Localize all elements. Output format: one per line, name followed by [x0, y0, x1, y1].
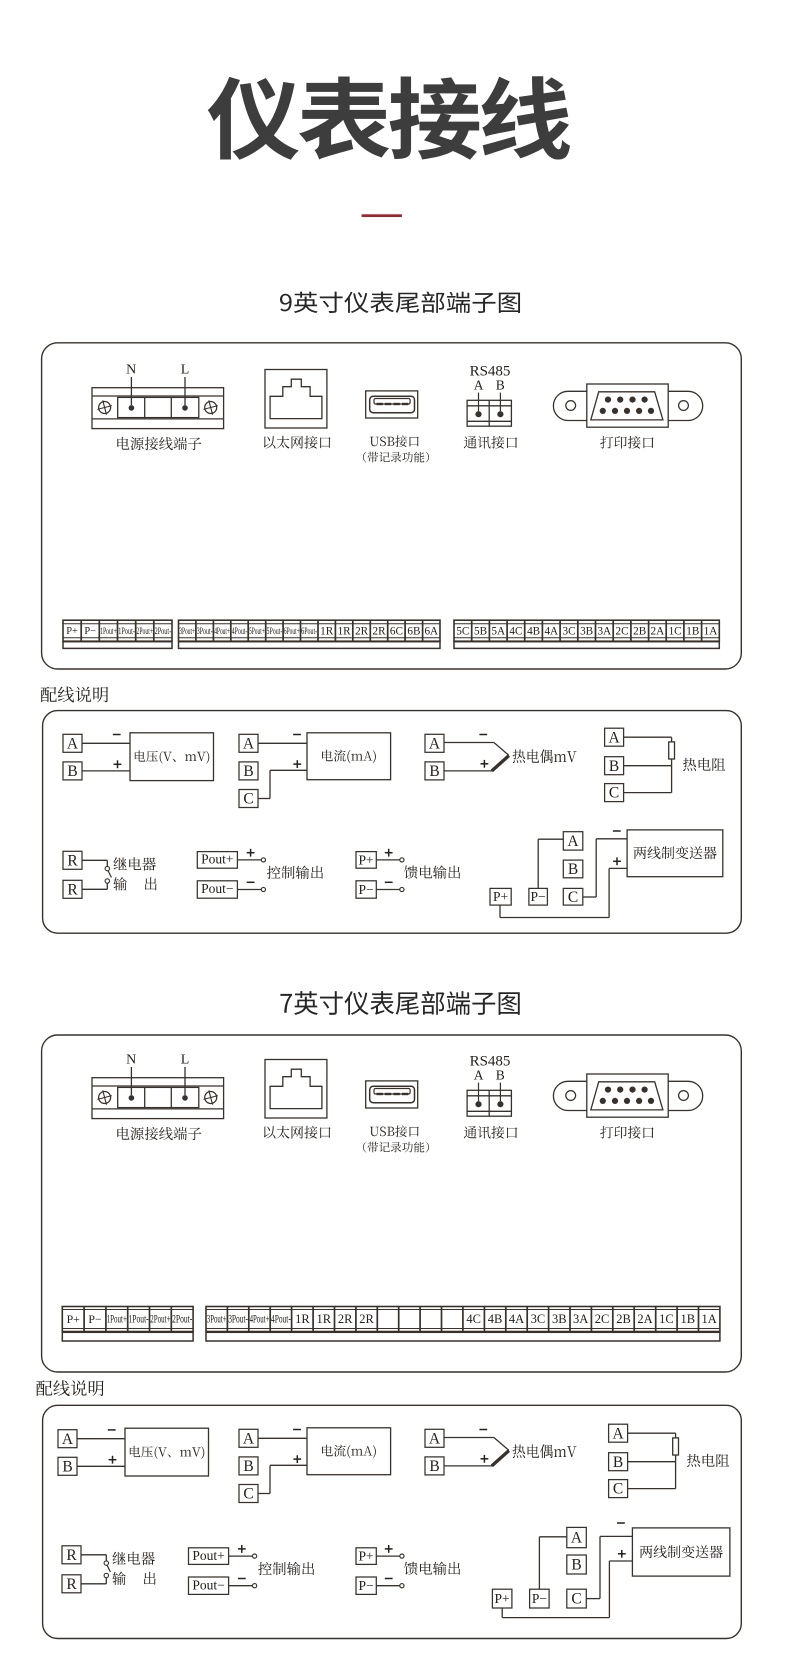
- svg-text:2B: 2B: [616, 1312, 631, 1326]
- svg-text:4Pout-: 4Pout-: [271, 1314, 291, 1326]
- svg-text:2Pout+: 2Pout+: [150, 1314, 170, 1326]
- svg-text:2Pout-: 2Pout-: [172, 1314, 192, 1326]
- svg-text:R: R: [66, 1547, 77, 1564]
- svg-text:C: C: [609, 785, 619, 802]
- svg-text:P+: P+: [67, 1312, 81, 1326]
- svg-text:B: B: [609, 758, 619, 775]
- svg-text:1R: 1R: [317, 1312, 332, 1326]
- svg-text:2B: 2B: [633, 625, 646, 637]
- svg-text:5Pout+: 5Pout+: [249, 627, 265, 637]
- svg-text:6B: 6B: [407, 625, 420, 637]
- svg-text:6A: 6A: [424, 625, 438, 637]
- svg-text:A: A: [243, 735, 255, 752]
- svg-text:3Pout-: 3Pout-: [228, 1314, 248, 1326]
- svg-text:2C: 2C: [595, 1312, 610, 1326]
- svg-text:3Pout+: 3Pout+: [179, 627, 195, 637]
- svg-text:B: B: [67, 763, 77, 780]
- svg-text:R: R: [67, 852, 78, 869]
- svg-text:C: C: [243, 791, 253, 808]
- svg-text:2R: 2R: [372, 625, 386, 637]
- svg-text:3C: 3C: [562, 625, 575, 637]
- svg-text:C: C: [243, 1486, 253, 1503]
- svg-text:A: A: [474, 1067, 484, 1082]
- svg-text:4C: 4C: [509, 625, 522, 637]
- svg-text:N: N: [126, 1053, 136, 1068]
- svg-text:B: B: [496, 1067, 505, 1082]
- svg-text:3C: 3C: [531, 1312, 546, 1326]
- svg-text:3B: 3B: [580, 625, 593, 637]
- svg-text:4B: 4B: [488, 1312, 503, 1326]
- svg-text:P+: P+: [493, 889, 508, 904]
- svg-text:P−: P−: [88, 1312, 102, 1326]
- svg-text:4Pout+: 4Pout+: [250, 1314, 270, 1326]
- svg-text:A: A: [612, 1425, 624, 1442]
- svg-text:2A: 2A: [637, 1312, 652, 1326]
- svg-text:C: C: [571, 1591, 581, 1608]
- svg-text:Pout−: Pout−: [192, 1577, 224, 1592]
- svg-text:5B: 5B: [474, 625, 487, 637]
- svg-text:R: R: [67, 881, 78, 898]
- svg-text:R: R: [66, 1576, 77, 1593]
- svg-text:3A: 3A: [573, 1312, 588, 1326]
- svg-text:1Pout+: 1Pout+: [100, 627, 117, 637]
- svg-text:1C: 1C: [659, 1312, 674, 1326]
- svg-text:5Pout-: 5Pout-: [267, 627, 283, 637]
- svg-text:Pout+: Pout+: [192, 1548, 224, 1563]
- svg-text:1R: 1R: [320, 625, 334, 637]
- svg-text:1B: 1B: [686, 625, 699, 637]
- svg-text:A: A: [567, 833, 579, 850]
- svg-text:A: A: [243, 1430, 255, 1447]
- svg-text:2Pout+: 2Pout+: [137, 627, 154, 637]
- svg-text:4Pout-: 4Pout-: [232, 627, 248, 637]
- svg-text:3Pout-: 3Pout-: [197, 627, 213, 637]
- svg-text:P−: P−: [359, 882, 374, 897]
- svg-text:4Pout+: 4Pout+: [214, 627, 230, 637]
- svg-text:1R: 1R: [295, 1312, 310, 1326]
- svg-text:2R: 2R: [359, 1312, 374, 1326]
- svg-text:5A: 5A: [491, 625, 505, 637]
- svg-text:4A: 4A: [509, 1312, 524, 1326]
- svg-text:4C: 4C: [466, 1312, 481, 1326]
- svg-text:B: B: [429, 763, 439, 780]
- svg-text:A: A: [571, 1530, 583, 1547]
- svg-text:4A: 4A: [544, 625, 558, 637]
- svg-text:N: N: [126, 363, 136, 378]
- svg-text:P+: P+: [495, 1591, 510, 1606]
- svg-text:P+: P+: [66, 626, 78, 637]
- svg-text:2C: 2C: [615, 625, 628, 637]
- svg-text:1B: 1B: [681, 1312, 696, 1326]
- svg-text:P−: P−: [359, 1578, 374, 1593]
- svg-text:6Pout-: 6Pout-: [301, 627, 317, 637]
- svg-text:P+: P+: [359, 1549, 374, 1564]
- svg-text:3A: 3A: [597, 625, 611, 637]
- svg-text:A: A: [608, 729, 620, 746]
- svg-text:P−: P−: [84, 626, 96, 637]
- svg-text:B: B: [496, 377, 505, 392]
- svg-text:1Pout+: 1Pout+: [107, 1314, 127, 1326]
- svg-text:A: A: [62, 1431, 74, 1448]
- svg-text:A: A: [474, 377, 484, 392]
- svg-text:Pout+: Pout+: [201, 852, 233, 867]
- svg-text:B: B: [243, 1458, 253, 1475]
- svg-text:2A: 2A: [651, 625, 665, 637]
- svg-text:B: B: [62, 1458, 72, 1475]
- svg-text:B: B: [429, 1458, 439, 1475]
- svg-text:A: A: [429, 1430, 441, 1447]
- svg-text:L: L: [181, 363, 190, 378]
- svg-text:P−: P−: [532, 1591, 547, 1606]
- svg-text:3B: 3B: [552, 1312, 567, 1326]
- svg-text:L: L: [181, 1053, 190, 1068]
- svg-text:A: A: [429, 735, 441, 752]
- svg-text:3Pout+: 3Pout+: [207, 1314, 227, 1326]
- svg-text:5C: 5C: [456, 625, 469, 637]
- svg-text:A: A: [67, 735, 79, 752]
- svg-text:B: B: [568, 861, 578, 878]
- svg-text:B: B: [571, 1557, 581, 1574]
- svg-text:C: C: [568, 889, 578, 906]
- svg-text:1A: 1A: [702, 1312, 717, 1326]
- svg-text:Pout−: Pout−: [201, 881, 233, 896]
- svg-text:1A: 1A: [704, 625, 718, 637]
- svg-text:B: B: [243, 763, 253, 780]
- svg-text:2R: 2R: [355, 625, 369, 637]
- svg-text:6C: 6C: [390, 625, 403, 637]
- svg-text:4B: 4B: [527, 625, 540, 637]
- svg-text:2R: 2R: [338, 1312, 353, 1326]
- svg-text:6Pout+: 6Pout+: [284, 627, 300, 637]
- svg-text:1Pout-: 1Pout-: [118, 627, 135, 637]
- svg-text:1R: 1R: [338, 625, 352, 637]
- svg-text:1C: 1C: [669, 625, 682, 637]
- svg-text:P−: P−: [531, 889, 546, 904]
- svg-text:P+: P+: [359, 852, 374, 867]
- svg-text:C: C: [613, 1481, 623, 1498]
- svg-text:B: B: [613, 1454, 623, 1471]
- svg-text:2Pout-: 2Pout-: [155, 627, 172, 637]
- svg-text:1Pout-: 1Pout-: [129, 1314, 149, 1326]
